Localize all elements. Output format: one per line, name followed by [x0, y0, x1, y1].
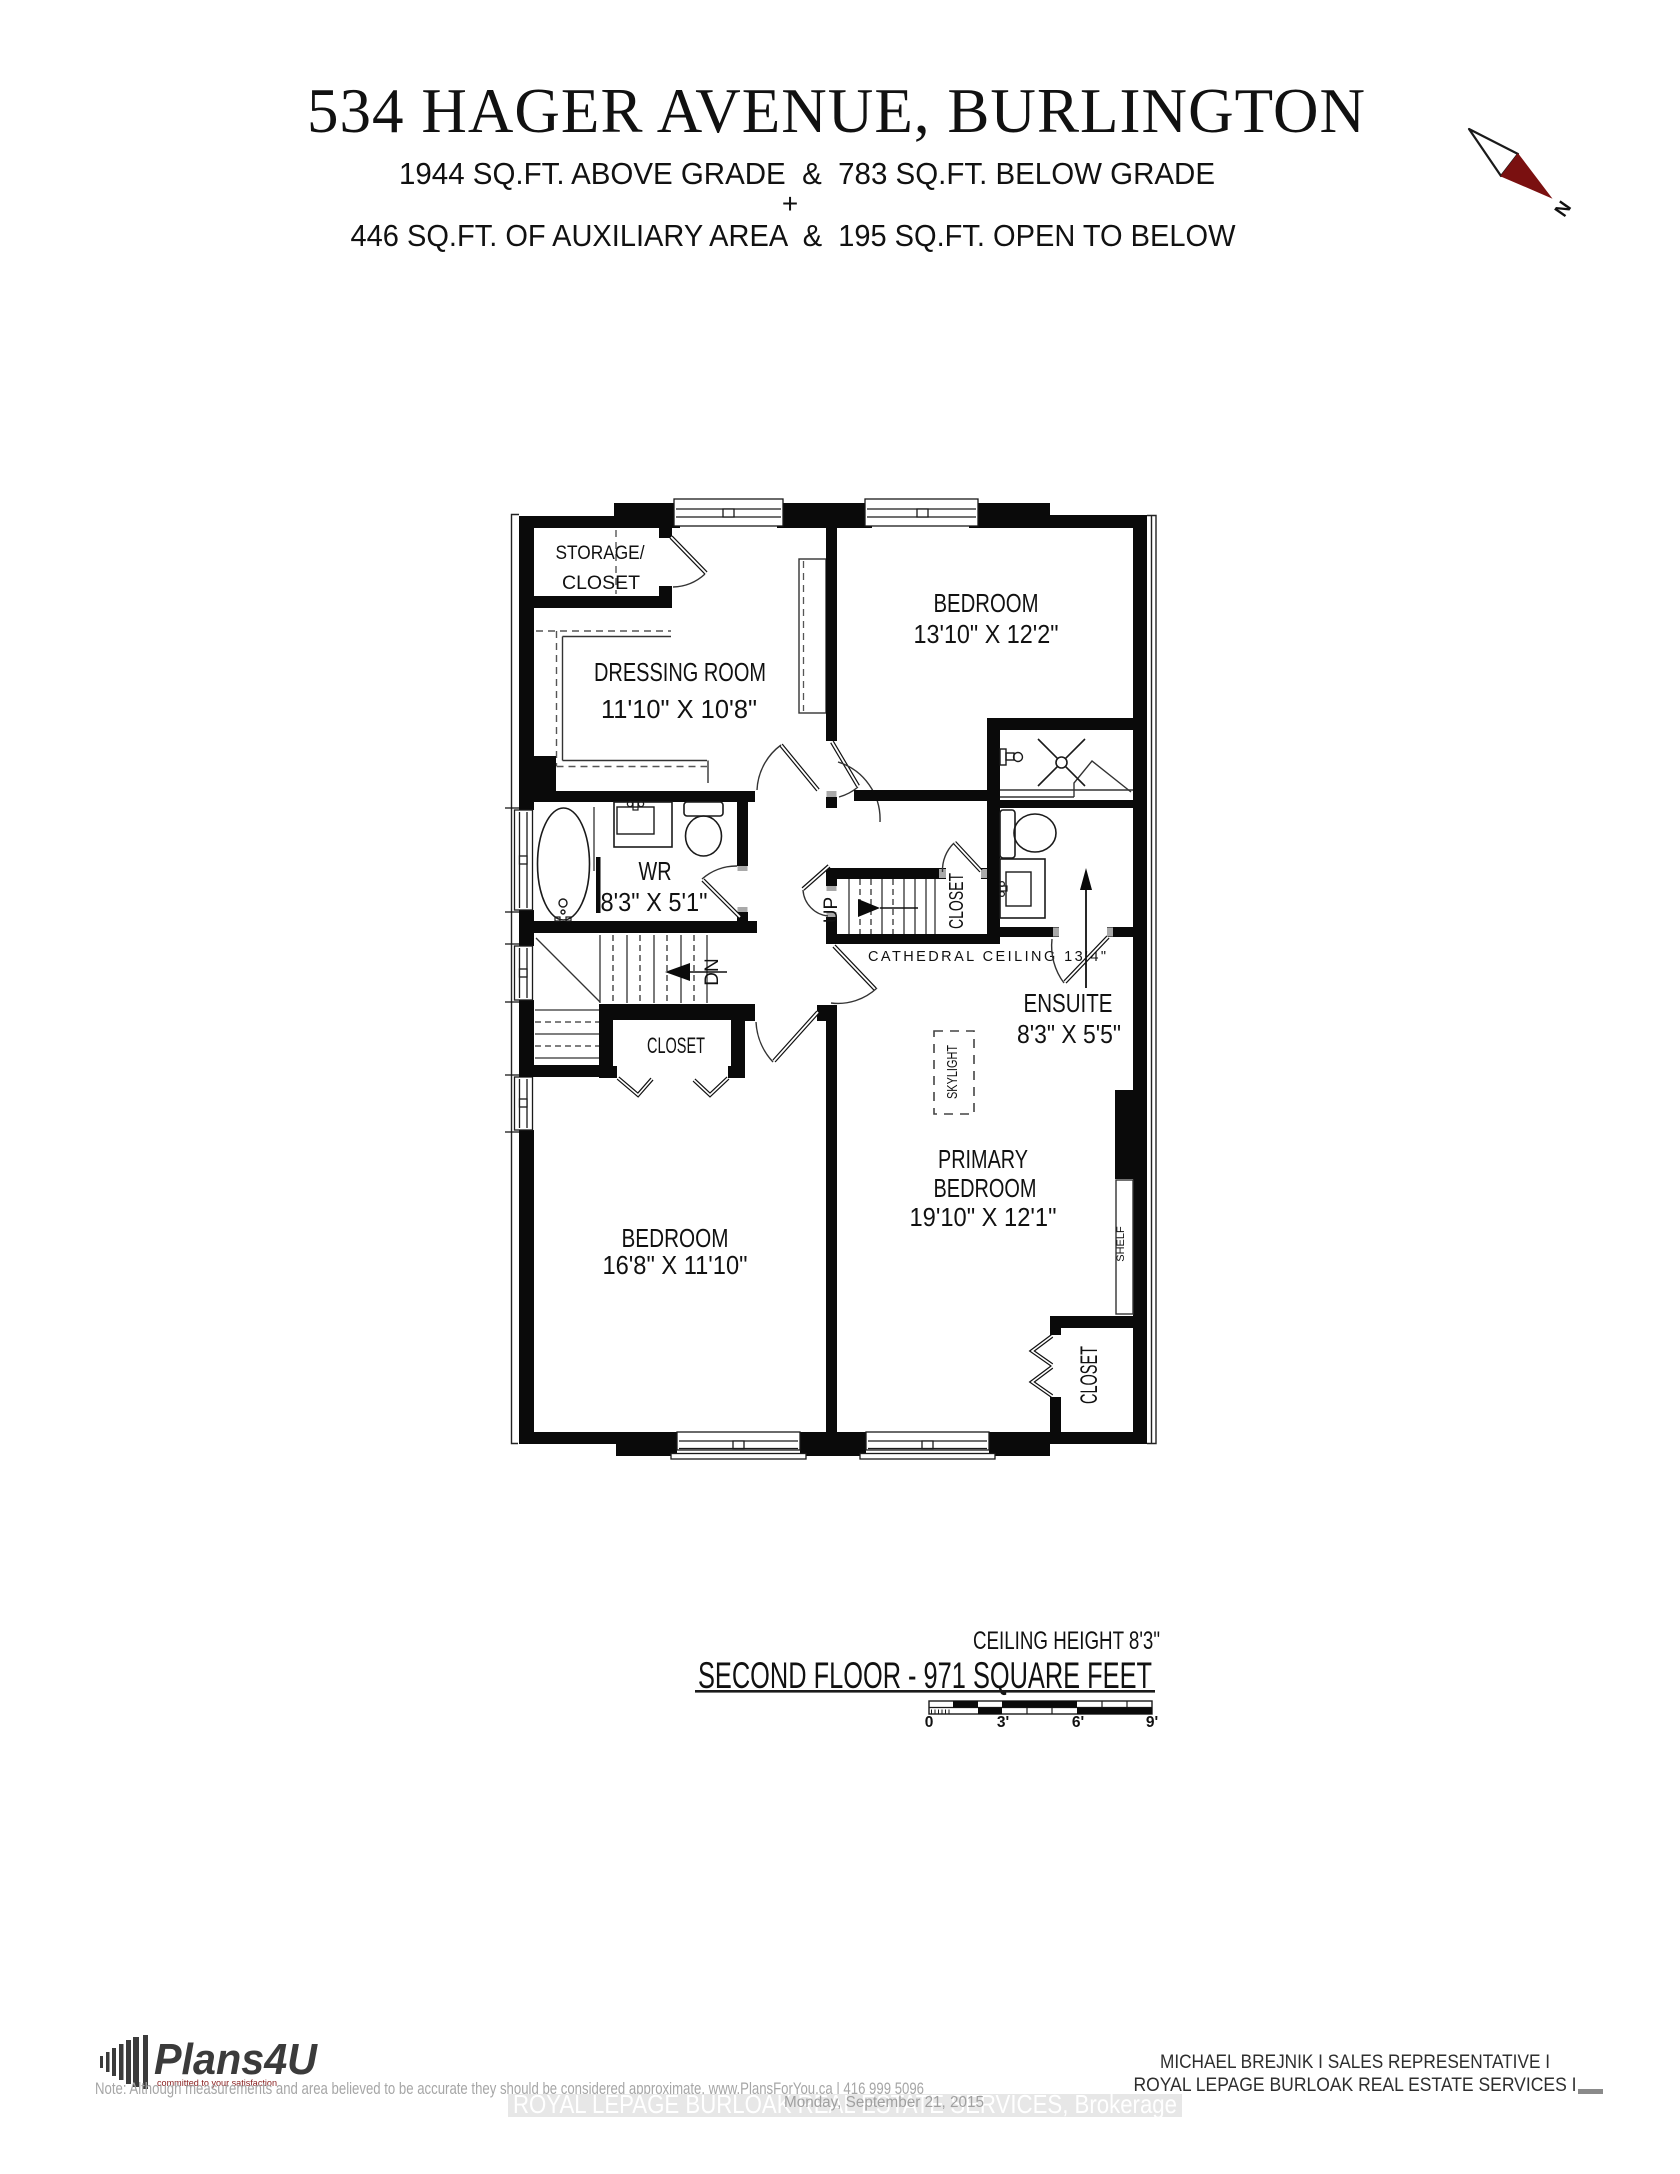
- svg-text:DN: DN: [702, 958, 723, 985]
- svg-text:CEILING HEIGHT 8'3": CEILING HEIGHT 8'3": [973, 1627, 1160, 1655]
- svg-text:SKYLIGHT: SKYLIGHT: [944, 1045, 961, 1099]
- svg-text:STORAGE/: STORAGE/: [556, 542, 646, 564]
- svg-text:11'10" X 10'8": 11'10" X 10'8": [601, 694, 757, 724]
- svg-text:Monday, September 21, 2015: Monday, September 21, 2015: [784, 2094, 984, 2111]
- svg-text:CLOSET: CLOSET: [647, 1033, 705, 1058]
- svg-text:BEDROOM: BEDROOM: [622, 1223, 729, 1253]
- svg-text:UP: UP: [821, 897, 842, 923]
- svg-text:BEDROOM: BEDROOM: [934, 588, 1039, 618]
- svg-text:8'3" X 5'5": 8'3" X 5'5": [1017, 1019, 1121, 1049]
- svg-text:PRIMARY: PRIMARY: [938, 1144, 1028, 1174]
- svg-text:13'10" X 12'2": 13'10" X 12'2": [914, 619, 1059, 649]
- svg-text:534 HAGER AVENUE, BURLINGTON: 534 HAGER AVENUE, BURLINGTON: [307, 76, 1365, 146]
- svg-text:BEDROOM: BEDROOM: [934, 1173, 1037, 1203]
- svg-text:+: +: [782, 188, 798, 219]
- svg-text:Plans4U: Plans4U: [154, 2035, 318, 2084]
- svg-text:3': 3': [997, 1714, 1009, 1731]
- svg-text:MICHAEL BREJNIK I SALES REPRES: MICHAEL BREJNIK I SALES REPRESENTATIVE I: [1160, 2051, 1550, 2073]
- svg-text:CLOSET: CLOSET: [946, 873, 968, 929]
- svg-text:CLOSET: CLOSET: [1076, 1346, 1103, 1404]
- svg-text:1944 SQ.FT. ABOVE GRADE & 78: 1944 SQ.FT. ABOVE GRADE & 783 SQ.FT. BEL…: [399, 156, 1215, 191]
- svg-text:16'8" X 11'10": 16'8" X 11'10": [603, 1250, 748, 1280]
- svg-text:6': 6': [1072, 1714, 1084, 1731]
- svg-text:SHELF: SHELF: [1115, 1226, 1127, 1262]
- svg-text:SECOND FLOOR - 971 SQUARE FEET: SECOND FLOOR - 971 SQUARE FEET: [698, 1655, 1152, 1696]
- svg-text:19'10" X 12'1": 19'10" X 12'1": [910, 1202, 1057, 1232]
- svg-text:446 SQ.FT. OF AUXILIARY AREA: 446 SQ.FT. OF AUXILIARY AREA & 195 SQ.FT…: [351, 218, 1237, 253]
- svg-text:ENSUITE: ENSUITE: [1024, 988, 1113, 1018]
- svg-text:DRESSING ROOM: DRESSING ROOM: [594, 657, 766, 687]
- svg-text:8'3" X 5'1": 8'3" X 5'1": [601, 887, 708, 917]
- svg-text:N: N: [1549, 196, 1574, 219]
- svg-text:0: 0: [925, 1714, 934, 1731]
- svg-text:9': 9': [1146, 1714, 1158, 1731]
- svg-text:CLOSET: CLOSET: [562, 572, 640, 594]
- svg-text:CATHEDRAL CEILING 13'4": CATHEDRAL CEILING 13'4": [868, 949, 1106, 965]
- svg-text:ROYAL LEPAGE BURLOAK REAL ESTA: ROYAL LEPAGE BURLOAK REAL ESTATE SERVICE…: [1134, 2074, 1577, 2096]
- svg-text:WR: WR: [639, 856, 672, 886]
